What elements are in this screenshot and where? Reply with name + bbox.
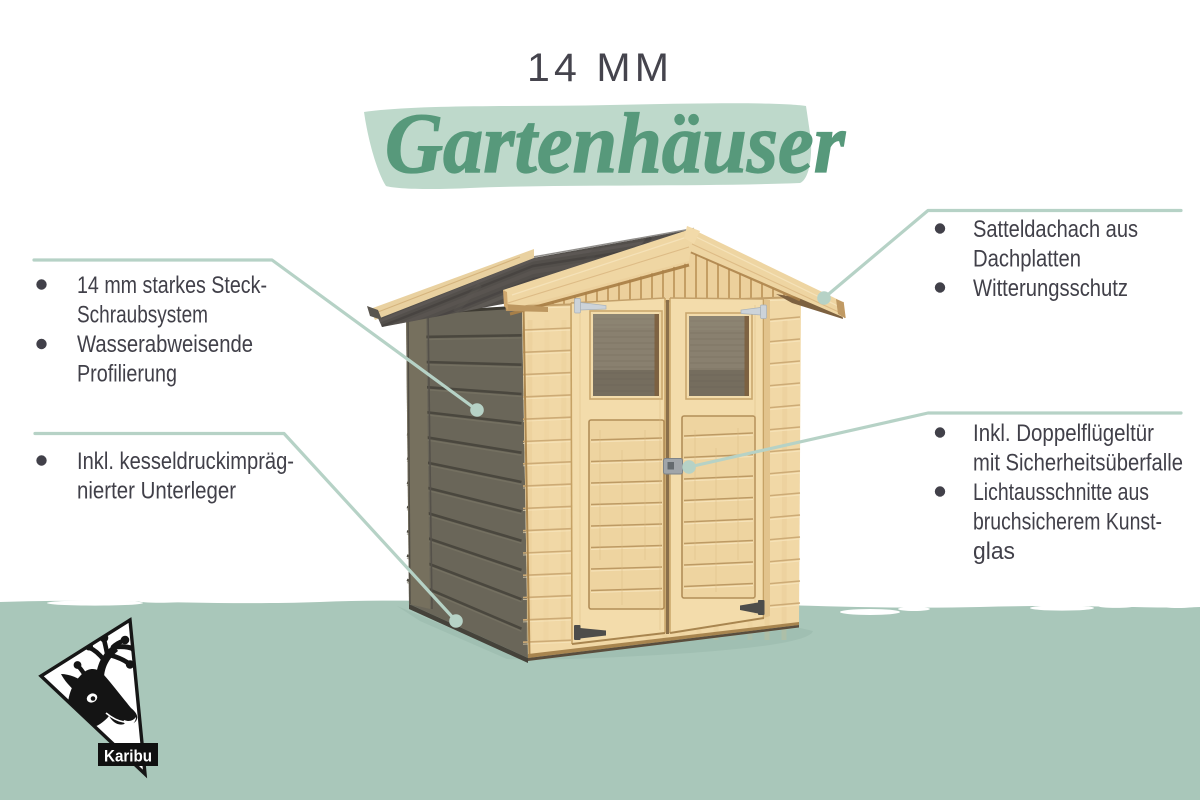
svg-text:nierter Unterleger: nierter Unterleger (77, 478, 236, 505)
svg-text:Gartenhäuser: Gartenhäuser (385, 95, 846, 191)
svg-text:14 MM: 14 MM (527, 46, 673, 90)
svg-text:Schraubsystem: Schraubsystem (77, 302, 208, 329)
svg-text:Lichtausschnitte aus: Lichtausschnitte aus (973, 479, 1149, 506)
svg-text:Inkl. kesseldruckimpräg-: Inkl. kesseldruckimpräg- (77, 448, 294, 475)
svg-text:14 mm starkes Steck-: 14 mm starkes Steck- (77, 272, 267, 299)
svg-text:Profilierung: Profilierung (77, 361, 177, 388)
svg-text:Wasserabweisende: Wasserabweisende (77, 331, 253, 358)
svg-text:glas: glas (973, 538, 1015, 565)
svg-text:bruchsicherem Kunst-: bruchsicherem Kunst- (973, 509, 1162, 536)
svg-text:mit Sicherheitsüberfalle: mit Sicherheitsüberfalle (973, 450, 1183, 477)
svg-text:Karibu: Karibu (104, 748, 152, 766)
svg-text:Dachplatten: Dachplatten (973, 246, 1081, 273)
svg-text:Witterungsschutz: Witterungsschutz (973, 275, 1128, 302)
svg-text:Satteldachach aus: Satteldachach aus (973, 216, 1138, 243)
svg-text:Inkl. Doppelflügeltür: Inkl. Doppelflügeltür (973, 420, 1154, 447)
